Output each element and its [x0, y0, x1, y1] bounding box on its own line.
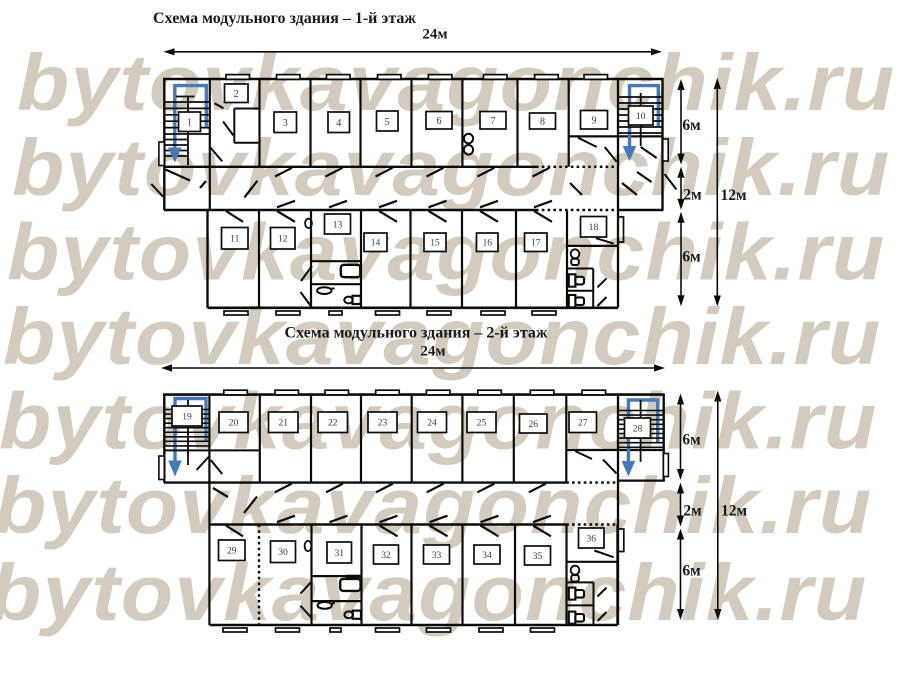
svg-text:6м: 6м [682, 249, 701, 266]
svg-text:6: 6 [437, 116, 442, 127]
svg-text:30: 30 [278, 548, 288, 558]
svg-text:2: 2 [234, 89, 239, 100]
svg-text:25: 25 [477, 419, 487, 429]
svg-text:6м: 6м [682, 117, 701, 134]
svg-text:21: 21 [279, 419, 289, 429]
svg-text:12м: 12м [720, 187, 747, 204]
svg-text:6м: 6м [682, 563, 701, 580]
svg-text:22: 22 [328, 419, 338, 429]
svg-text:13: 13 [333, 220, 343, 230]
svg-text:31: 31 [335, 549, 345, 559]
svg-text:36: 36 [587, 534, 597, 544]
svg-text:Схема модульного здания – 1-й: Схема модульного здания – 1-й этаж [153, 10, 416, 27]
svg-text:19: 19 [182, 412, 192, 422]
svg-text:12м: 12м [721, 503, 748, 520]
svg-text:14: 14 [371, 239, 381, 249]
svg-text:18: 18 [589, 223, 599, 233]
svg-text:4: 4 [336, 118, 342, 129]
svg-text:12: 12 [278, 235, 288, 245]
svg-text:28: 28 [633, 424, 643, 434]
svg-text:27: 27 [578, 419, 588, 429]
svg-text:32: 32 [381, 551, 391, 561]
svg-text:24м: 24м [422, 27, 447, 43]
svg-text:5: 5 [385, 117, 390, 128]
svg-text:24м: 24м [420, 344, 445, 360]
svg-text:2м: 2м [683, 503, 702, 520]
svg-text:Схема модульного здания – 2-й: Схема модульного здания – 2-й этаж [285, 325, 548, 342]
svg-text:17: 17 [531, 239, 541, 249]
svg-text:34: 34 [482, 551, 492, 561]
svg-text:15: 15 [430, 239, 440, 249]
svg-text:11: 11 [230, 235, 239, 245]
svg-text:10: 10 [636, 112, 646, 122]
svg-text:35: 35 [533, 552, 543, 562]
svg-text:16: 16 [483, 239, 493, 249]
svg-text:9: 9 [592, 115, 597, 126]
svg-text:7: 7 [491, 116, 496, 127]
svg-text:8: 8 [540, 117, 545, 128]
svg-text:33: 33 [432, 551, 442, 561]
svg-text:1: 1 [187, 118, 192, 129]
svg-text:6м: 6м [682, 432, 701, 449]
svg-text:3: 3 [283, 118, 288, 129]
svg-text:29: 29 [227, 547, 237, 557]
svg-text:2м: 2м [683, 187, 702, 204]
svg-text:20: 20 [229, 419, 239, 429]
svg-text:24: 24 [427, 419, 437, 429]
svg-text:23: 23 [378, 419, 388, 429]
svg-text:26: 26 [529, 420, 539, 430]
